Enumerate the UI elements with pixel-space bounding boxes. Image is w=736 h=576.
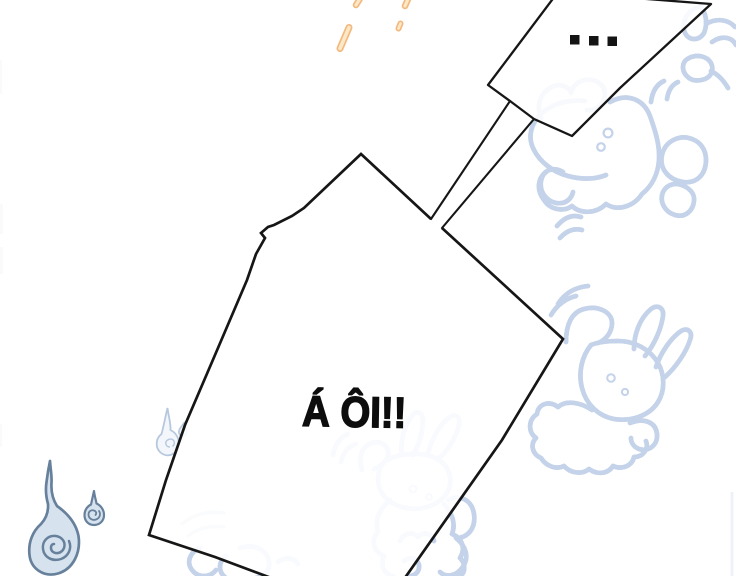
svg-text:Á ÔI!!: Á ÔI!!: [302, 387, 407, 437]
